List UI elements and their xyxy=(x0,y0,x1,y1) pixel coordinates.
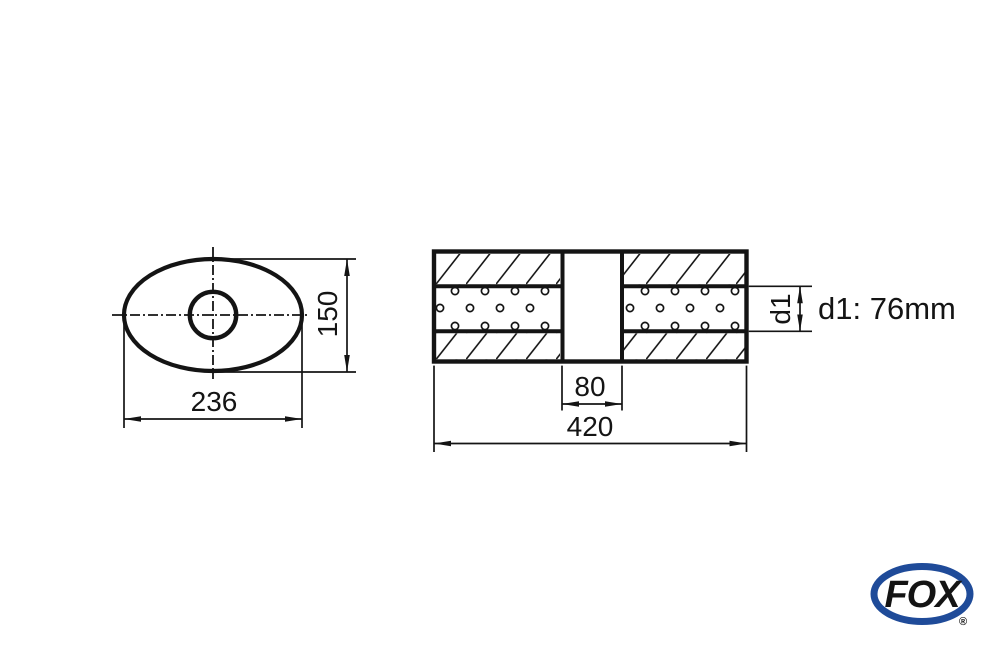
length-dimension-label: 420 xyxy=(567,411,614,442)
oval-front-view: 236 150 xyxy=(112,247,356,428)
gap-dimension-label: 80 xyxy=(574,371,605,402)
drawing-canvas: 236 150 xyxy=(0,0,1000,645)
dimension-d1: d1 d1: 76mm xyxy=(749,286,956,331)
registered-trademark-symbol: ® xyxy=(959,616,967,628)
height-dimension-label: 150 xyxy=(312,291,343,338)
center-gap xyxy=(565,254,621,359)
side-section-view: 80 420 d1 d1: 76mm xyxy=(434,252,956,453)
dimension-center-gap: 80 xyxy=(562,366,622,411)
width-dimension-label: 236 xyxy=(191,386,238,417)
d1-axis-label: d1 xyxy=(765,293,796,324)
d1-value-label: d1: 76mm xyxy=(818,291,956,326)
fox-logo: FOX ® xyxy=(874,567,970,629)
muffler-technical-drawing: 236 150 xyxy=(0,0,1000,645)
logo-text: FOX xyxy=(884,574,963,616)
